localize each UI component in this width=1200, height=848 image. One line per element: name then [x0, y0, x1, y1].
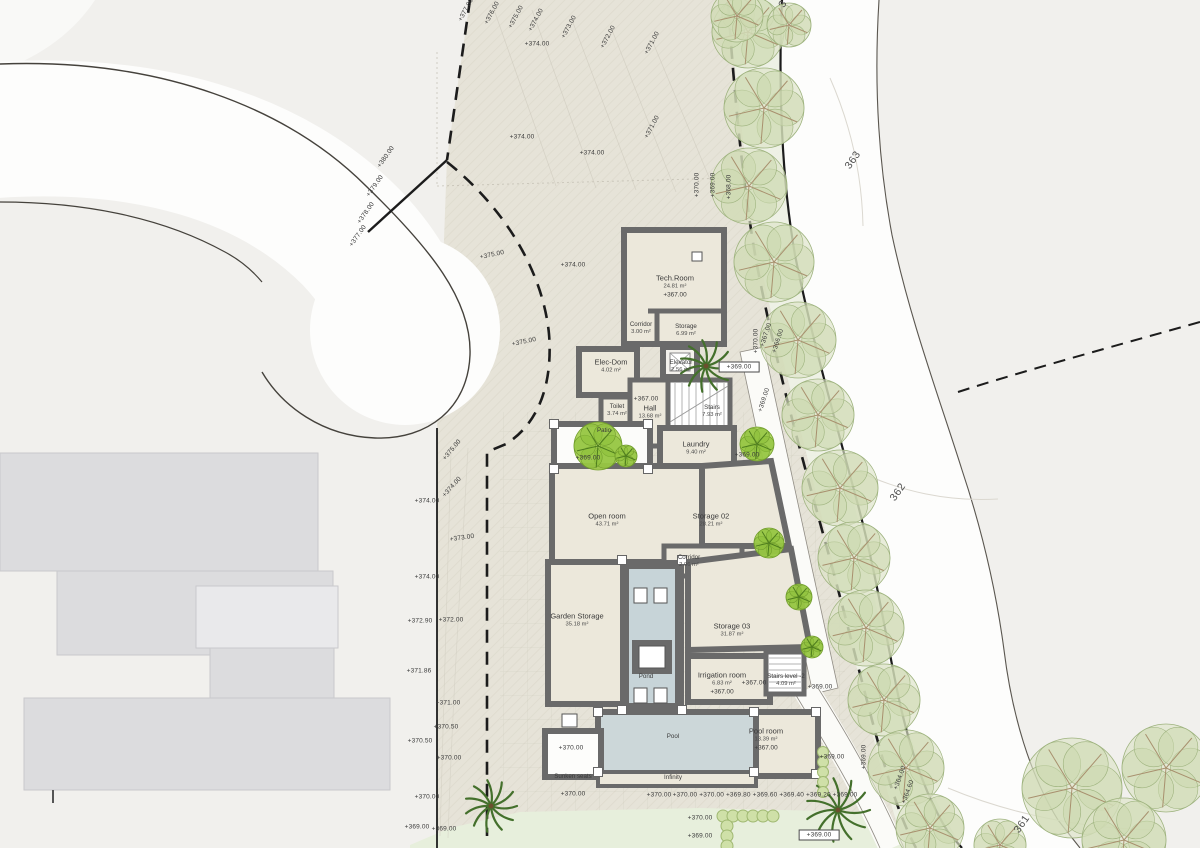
room-name: Storage: [675, 323, 697, 331]
room-name: Laundry: [682, 439, 709, 449]
road-contour-label: 3: [776, 0, 790, 10]
elevation-label: +373.00: [449, 533, 474, 543]
elevation-label: +370.00: [415, 794, 440, 801]
elevation-label: +379.00: [365, 174, 385, 198]
elevation-label: +374.00: [510, 134, 535, 141]
elevation-label: +376.00: [483, 0, 501, 25]
elevation-label: +375.00: [441, 438, 462, 461]
room-label-storage-02: Storage 0228.21 m²: [693, 511, 730, 528]
room-label-pool: Pool: [667, 733, 679, 741]
elevation-label: +374.00: [580, 150, 605, 157]
elevation-label: +368.00: [726, 175, 733, 200]
room-area: 4.02 m²: [595, 367, 628, 375]
elevation-label: +370.00: [694, 173, 701, 198]
room-name: Stairs: [702, 404, 722, 412]
room-label-sunken-seats: Sunken seats: [554, 773, 592, 781]
room-label-hall: Hall13.68 m²: [639, 403, 662, 420]
room-area: 43.71 m²: [588, 521, 626, 529]
elevation-label: +374.00: [415, 498, 440, 505]
elevation-label: +375.00: [511, 336, 537, 348]
elevation-label: +369.00: [861, 745, 868, 770]
room-elevation: +367.00: [749, 745, 783, 753]
road-contour-label: 363: [843, 149, 864, 172]
room-area: 2.56 m²: [670, 367, 693, 375]
room-label-corridor-2: Corridor2.96 m²: [678, 554, 700, 570]
room-area: 6.99 m²: [675, 331, 697, 339]
elevation-label: +371.86: [407, 668, 432, 675]
elevation-label: +369.00: [799, 830, 840, 841]
elevation-label: +369.00: [719, 362, 760, 373]
site-plan-canvas: +377.00+376.00+375.00+374.00+373.00+372.…: [0, 0, 1200, 848]
elevation-label: +370.00: [647, 792, 672, 799]
room-label-open-room: Open room43.71 m²: [588, 511, 626, 528]
room-name: Patio: [597, 427, 611, 435]
elevation-label: +374.00: [415, 574, 440, 581]
room-area: 13.39 m²: [749, 736, 783, 744]
room-name: Hall: [639, 403, 662, 413]
elevation-label: +369.00: [405, 824, 430, 831]
elevation-label: +380.00: [376, 145, 396, 169]
room-name: Toilet: [607, 403, 627, 411]
room-name: Sunken seats: [554, 773, 592, 781]
room-name: Elevator: [670, 359, 693, 367]
elevation-label: +369.00: [576, 455, 601, 462]
elevation-label: +369.00: [820, 754, 845, 761]
room-label-storage-03: Storage 0331.87 m²: [714, 621, 751, 638]
room-area: 7.93 m²: [702, 412, 722, 420]
room-area: 24.81 m²: [656, 283, 694, 291]
room-name: Pool room: [749, 727, 783, 737]
elevation-label: +369.00: [808, 684, 833, 691]
elevation-label: +375.00: [507, 4, 525, 29]
room-name: Storage 03: [714, 621, 751, 631]
elevation-label: +372.00: [599, 24, 617, 49]
elevation-label: +373.00: [560, 14, 578, 39]
elevation-label: +378.00: [356, 201, 376, 225]
room-label-stairs-level-2: Stairs level -24.09 m²: [767, 673, 804, 689]
elevation-label: +369.00: [735, 452, 760, 459]
room-area: 28.21 m²: [693, 521, 730, 529]
room-area: 2.96 m²: [678, 562, 700, 570]
elevation-label: +375.00: [479, 249, 505, 261]
elevation-label: +364.60: [900, 779, 915, 805]
room-area: 13.68 m²: [639, 413, 662, 421]
room-label-elevator: Elevator2.56 m²: [670, 359, 693, 375]
room-elevation: +367.00: [656, 292, 694, 300]
room-label-irrigation-room: Irrigation room6.83 m²+367.00: [698, 671, 746, 698]
road-contour-label: 362: [888, 481, 909, 504]
elevation-label: +370.00 +370.00 +369.80 +369.60 +369.40 …: [673, 792, 858, 799]
room-label-pond: Pond: [639, 673, 653, 681]
room-name: Corridor: [678, 554, 700, 562]
elevation-label: +367.00: [634, 396, 659, 403]
room-name: Infinity: [664, 774, 682, 782]
elevation-label: +369.00: [432, 826, 457, 833]
room-label-garden-storage: Garden Storage35.18 m²: [550, 611, 603, 628]
room-label-pool-room: Pool room13.39 m²+367.00: [749, 727, 783, 754]
elevation-label: +372.90: [408, 618, 433, 625]
elevation-label: +371.00: [643, 114, 661, 139]
room-label-infinity: Infinity: [664, 774, 682, 782]
room-name: Pool: [667, 733, 679, 741]
room-label-stairs: Stairs7.93 m²: [702, 404, 722, 420]
room-area: 31.87 m²: [714, 631, 751, 639]
elevation-label: +370.50: [434, 724, 459, 731]
room-elevation: +367.00: [698, 689, 746, 697]
room-area: 9.40 m²: [682, 449, 709, 457]
room-label-tech-room: Tech.Room24.81 m²+367.00: [656, 274, 694, 301]
room-area: 3.00 m²: [630, 329, 652, 337]
elevation-label: +371.00: [643, 30, 661, 55]
elevation-label: +374.00: [525, 41, 550, 48]
room-area: 35.18 m²: [550, 621, 603, 629]
elevation-label: +377.00: [348, 224, 368, 248]
elevation-label: +374.00: [561, 262, 586, 269]
elevation-label: +372.00: [439, 617, 464, 624]
elevation-label: +369.00: [688, 833, 713, 840]
elevation-label: +370.00: [437, 755, 462, 762]
room-name: Corridor: [630, 321, 652, 329]
elevation-label: +369.00: [757, 387, 771, 413]
room-name: Pond: [639, 673, 653, 681]
room-label-patio: Patio: [597, 427, 611, 435]
room-name: Irrigation room: [698, 671, 746, 681]
room-name: Open room: [588, 511, 626, 521]
elevation-label: +366.00: [771, 328, 785, 354]
room-label-laundry: Laundry9.40 m²: [682, 439, 709, 456]
room-label-storage-1: Storage6.99 m²: [675, 323, 697, 339]
elevation-label: +369.00: [710, 173, 717, 198]
room-area: 4.09 m²: [767, 681, 804, 689]
room-area: 3.74 m²: [607, 411, 627, 419]
room-name: Stairs level -2: [767, 673, 804, 681]
elevation-label: +374.00: [527, 7, 545, 32]
room-name: Tech.Room: [656, 274, 694, 284]
room-name: Elec-Dom: [595, 357, 628, 367]
elevation-label: +377.00: [457, 0, 475, 23]
road-contour-label: 361: [1012, 813, 1033, 836]
room-label-toilet: Toilet3.74 m²: [607, 403, 627, 419]
room-label-corridor-1: Corridor3.00 m²: [630, 321, 652, 337]
room-label-elec-dom: Elec-Dom4.02 m²: [595, 357, 628, 374]
room-name: Storage 02: [693, 511, 730, 521]
elevation-label: +370.00: [559, 745, 584, 752]
elevation-label: +371.00: [436, 700, 461, 707]
elevation-label: +374.00: [441, 475, 463, 498]
elevation-label: +370.50: [408, 738, 433, 745]
elevation-label: +370.00: [561, 791, 586, 798]
room-name: Garden Storage: [550, 611, 603, 621]
room-area: 6.83 m²: [698, 680, 746, 688]
elevation-label: +370.00: [688, 815, 713, 822]
labels-layer: +377.00+376.00+375.00+374.00+373.00+372.…: [0, 0, 1200, 848]
elevation-label: +367.00: [759, 322, 773, 348]
elevation-label: +370.00: [753, 329, 760, 354]
